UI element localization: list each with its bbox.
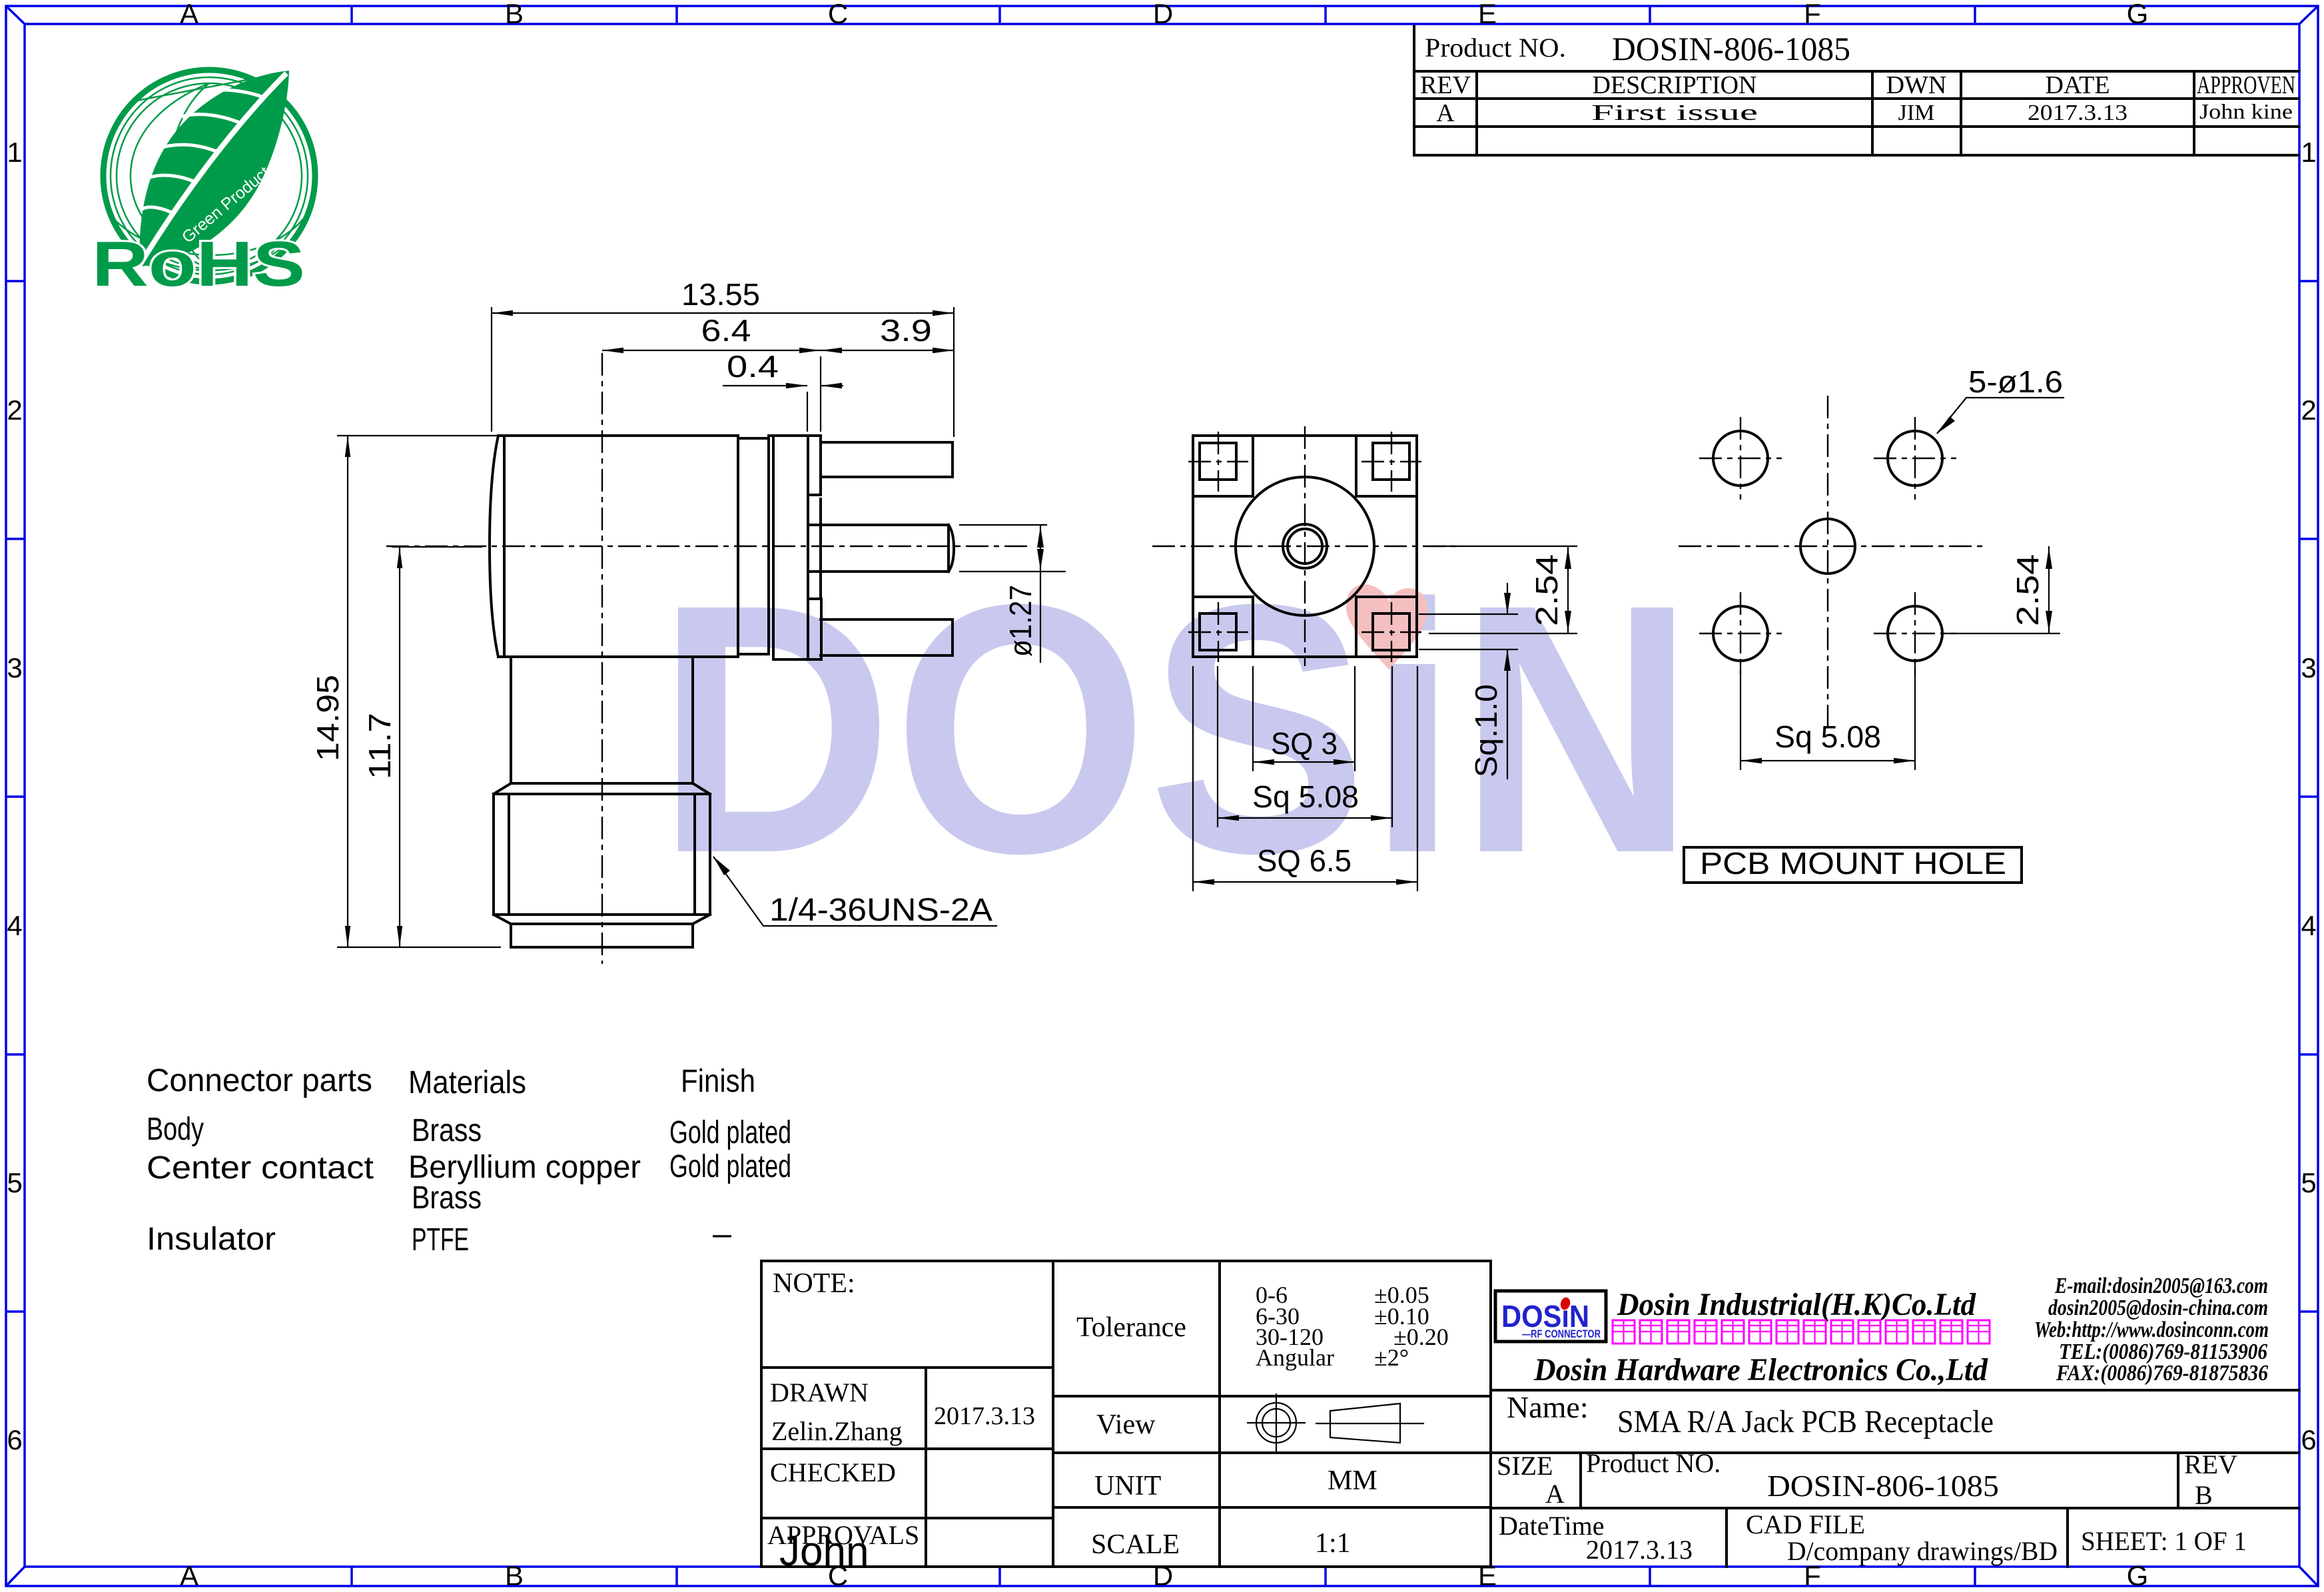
svg-text:CHECKED: CHECKED [770, 1457, 896, 1487]
svg-text:Gold plated: Gold plated [669, 1115, 791, 1150]
svg-text:5-ø1.6: 5-ø1.6 [1968, 364, 2063, 399]
svg-text:Dosin Industrial(H.K)Co.Ltd: Dosin Industrial(H.K)Co.Ltd [1617, 1287, 1976, 1322]
svg-text:14.95: 14.95 [310, 675, 345, 761]
svg-text:A: A [180, 0, 198, 29]
svg-text:SIZE: SIZE [1497, 1451, 1553, 1481]
svg-text:11.7: 11.7 [362, 713, 397, 779]
svg-text:B: B [2195, 1480, 2213, 1510]
svg-text:2.54: 2.54 [2010, 554, 2045, 626]
svg-text:E: E [1478, 1560, 1497, 1591]
svg-text:dosin2005@dosin-china.com: dosin2005@dosin-china.com [2048, 1296, 2268, 1320]
svg-text:Insulator: Insulator [147, 1222, 276, 1257]
svg-text:D: D [1153, 0, 1173, 29]
svg-text:DOSIN-806-1085: DOSIN-806-1085 [1612, 30, 1850, 67]
svg-text:Finish: Finish [681, 1064, 755, 1099]
svg-text:Web:http://www.dosinconn.com: Web:http://www.dosinconn.com [2034, 1318, 2269, 1342]
svg-text:Connector parts: Connector parts [147, 1063, 372, 1098]
svg-text:View: View [1096, 1409, 1156, 1440]
svg-text:E-mail:dosin2005@163.com: E-mail:dosin2005@163.com [2054, 1274, 2268, 1298]
svg-text:Materials: Materials [408, 1065, 526, 1100]
svg-text:JIM: JIM [1898, 101, 1935, 125]
svg-text:SHEET: 1 OF 1: SHEET: 1 OF 1 [2081, 1526, 2247, 1556]
svg-text:MM: MM [1328, 1465, 1377, 1496]
svg-text:Body: Body [147, 1112, 204, 1147]
svg-text:1/4-36UNS-2A: 1/4-36UNS-2A [769, 893, 992, 928]
svg-text:C: C [828, 0, 848, 29]
svg-text:Product NO.: Product NO. [1586, 1448, 1721, 1478]
svg-text:6: 6 [7, 1424, 22, 1455]
svg-text:A: A [1545, 1479, 1565, 1509]
svg-text:PCB MOUNT HOLE: PCB MOUNT HOLE [1700, 846, 2006, 881]
svg-text:G: G [2127, 0, 2149, 29]
svg-text:0.4: 0.4 [727, 349, 779, 384]
svg-text:A: A [180, 1560, 198, 1591]
svg-text:1:1: 1:1 [1315, 1528, 1351, 1559]
svg-text:Angular: Angular [1256, 1344, 1334, 1371]
svg-text:Sq 5.08: Sq 5.08 [1774, 719, 1881, 754]
svg-text:DWN: DWN [1886, 71, 1947, 99]
svg-text:2017.3.13: 2017.3.13 [2028, 101, 2128, 125]
svg-text:DRAWN: DRAWN [770, 1378, 869, 1407]
svg-text:3: 3 [7, 652, 22, 683]
svg-text:Dosin Hardware Electronics Co: Dosin Hardware Electronics Co.,Ltd [1533, 1352, 1988, 1388]
svg-text:Name:: Name: [1507, 1390, 1589, 1424]
svg-text:1: 1 [7, 137, 22, 168]
svg-text:PTFE: PTFE [412, 1222, 469, 1258]
svg-text:NOTE:: NOTE: [773, 1268, 855, 1299]
svg-text:Gold plated: Gold plated [669, 1149, 791, 1184]
svg-text:SMA R/A Jack PCB Receptacle: SMA R/A Jack PCB Receptacle [1617, 1404, 1994, 1439]
svg-text:B: B [505, 1560, 524, 1591]
svg-text:2: 2 [7, 394, 22, 426]
svg-text:Brass: Brass [412, 1113, 482, 1148]
svg-text:UNIT: UNIT [1094, 1471, 1161, 1501]
svg-text:SQ 3: SQ 3 [1271, 726, 1338, 761]
svg-text:REV: REV [2184, 1449, 2237, 1479]
svg-text:5: 5 [2301, 1167, 2316, 1198]
svg-text:Zelin.Zhang: Zelin.Zhang [771, 1416, 903, 1446]
svg-text:Sq.1.0: Sq.1.0 [1469, 684, 1503, 777]
svg-text:2017.3.13: 2017.3.13 [934, 1402, 1035, 1430]
svg-text:Center contact: Center contact [147, 1150, 374, 1186]
svg-text:A: A [1436, 99, 1455, 127]
svg-text:2017.3.13: 2017.3.13 [1586, 1535, 1693, 1565]
svg-text:APPROVEN: APPROVEN [2197, 71, 2295, 99]
svg-text:Product NO.: Product NO. [1425, 33, 1566, 63]
svg-text:RoHS: RoHS [92, 228, 305, 300]
svg-text:3: 3 [2301, 652, 2316, 683]
svg-text:—: — [713, 1216, 731, 1252]
svg-text:2.54: 2.54 [1529, 554, 1564, 626]
svg-text:Sq 5.08: Sq 5.08 [1252, 779, 1359, 814]
svg-text:John: John [779, 1529, 869, 1575]
svg-text:2: 2 [2301, 394, 2316, 426]
svg-text:CAD FILE: CAD FILE [1746, 1509, 1865, 1539]
svg-text:1: 1 [2301, 137, 2316, 168]
svg-text:13.55: 13.55 [681, 277, 760, 312]
svg-text:D: D [1153, 1560, 1173, 1591]
svg-text:—RF CONNECTOR: —RF CONNECTOR [1522, 1328, 1601, 1340]
svg-text:DESCRIPTION: DESCRIPTION [1592, 71, 1756, 99]
svg-text:D/company drawings/BD: D/company drawings/BD [1787, 1536, 2058, 1566]
svg-text:4: 4 [2301, 910, 2316, 941]
svg-text:First issue: First issue [1591, 101, 1758, 125]
svg-text:F: F [1804, 0, 1821, 29]
svg-text:DOSIN-806-1085: DOSIN-806-1085 [1767, 1469, 1999, 1503]
svg-text:±2°: ±2° [1374, 1344, 1409, 1371]
svg-text:Brass: Brass [412, 1180, 482, 1216]
svg-text:John kine: John kine [2199, 99, 2293, 123]
svg-text:4: 4 [7, 910, 22, 941]
svg-text:E: E [1478, 0, 1497, 29]
svg-text:DATE: DATE [2045, 71, 2110, 99]
svg-text:G: G [2127, 1560, 2149, 1591]
svg-text:Tolerance: Tolerance [1076, 1312, 1186, 1343]
svg-text:SQ 6.5: SQ 6.5 [1257, 843, 1352, 878]
svg-text:B: B [505, 0, 524, 29]
svg-text:REV: REV [1420, 71, 1471, 99]
svg-text:3.9: 3.9 [880, 313, 932, 348]
svg-text:6: 6 [2301, 1424, 2316, 1455]
svg-text:FAX:(0086)769-81875836: FAX:(0086)769-81875836 [2056, 1361, 2268, 1386]
svg-text:6.4: 6.4 [701, 313, 751, 348]
svg-text:SCALE: SCALE [1091, 1529, 1180, 1560]
svg-text:ø1.27: ø1.27 [1003, 585, 1038, 657]
svg-text:5: 5 [7, 1167, 22, 1198]
